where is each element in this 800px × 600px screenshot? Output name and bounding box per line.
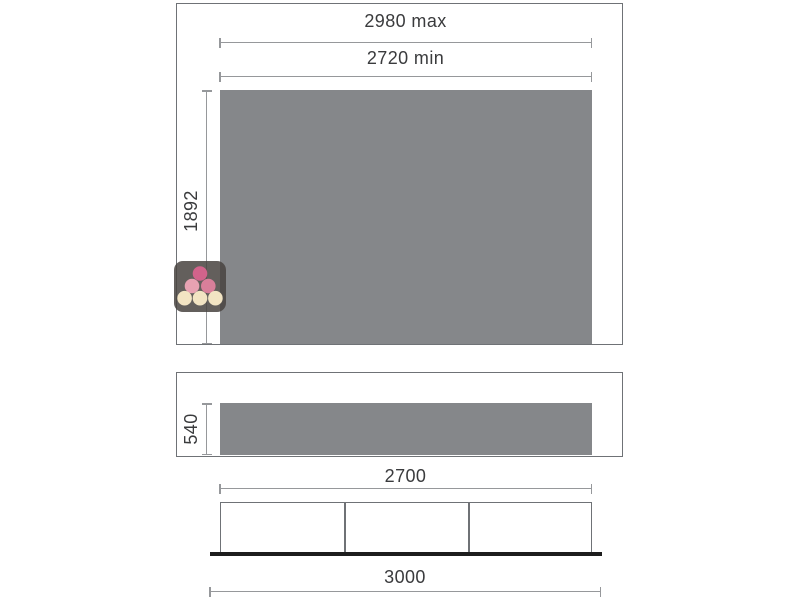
plinth-divider xyxy=(344,503,346,553)
dim-tick xyxy=(202,343,212,345)
dim-width-max-label: 2980 max xyxy=(219,12,592,30)
dim-tick xyxy=(219,72,221,82)
base-ground-line xyxy=(210,552,602,556)
plinth-box xyxy=(220,502,592,553)
dim-tick xyxy=(219,38,221,48)
dim-inner-width-line xyxy=(219,488,592,489)
dim-tick xyxy=(591,38,593,48)
plinth-divider xyxy=(468,503,470,553)
dim-tick xyxy=(591,484,593,494)
dim-tick xyxy=(202,403,212,405)
dim-outer-width-line xyxy=(209,591,601,592)
dim-tick xyxy=(202,454,212,456)
dim-tick xyxy=(591,72,593,82)
side-view-panel xyxy=(220,403,592,455)
dim-tick xyxy=(219,484,221,494)
front-view-panel xyxy=(220,90,592,344)
dim-inner-width-label: 2700 xyxy=(219,467,592,485)
dim-tick xyxy=(202,90,212,92)
dim-width-min-line xyxy=(219,76,592,77)
dim-tick xyxy=(209,587,211,597)
wine-bottle-caps-icon xyxy=(174,261,226,312)
dim-depth-label: 540 xyxy=(182,413,200,444)
dim-tick xyxy=(600,587,602,597)
dim-depth-line xyxy=(206,403,207,455)
dimension-diagram: 2980 max 2720 min 1892 540 2700 xyxy=(0,0,800,600)
dim-width-max-line xyxy=(219,42,592,43)
dim-width-min-label: 2720 min xyxy=(219,49,592,67)
brand-logo-icon xyxy=(174,261,226,312)
dim-height-label: 1892 xyxy=(182,190,200,232)
dim-outer-width-label: 3000 xyxy=(209,568,601,586)
